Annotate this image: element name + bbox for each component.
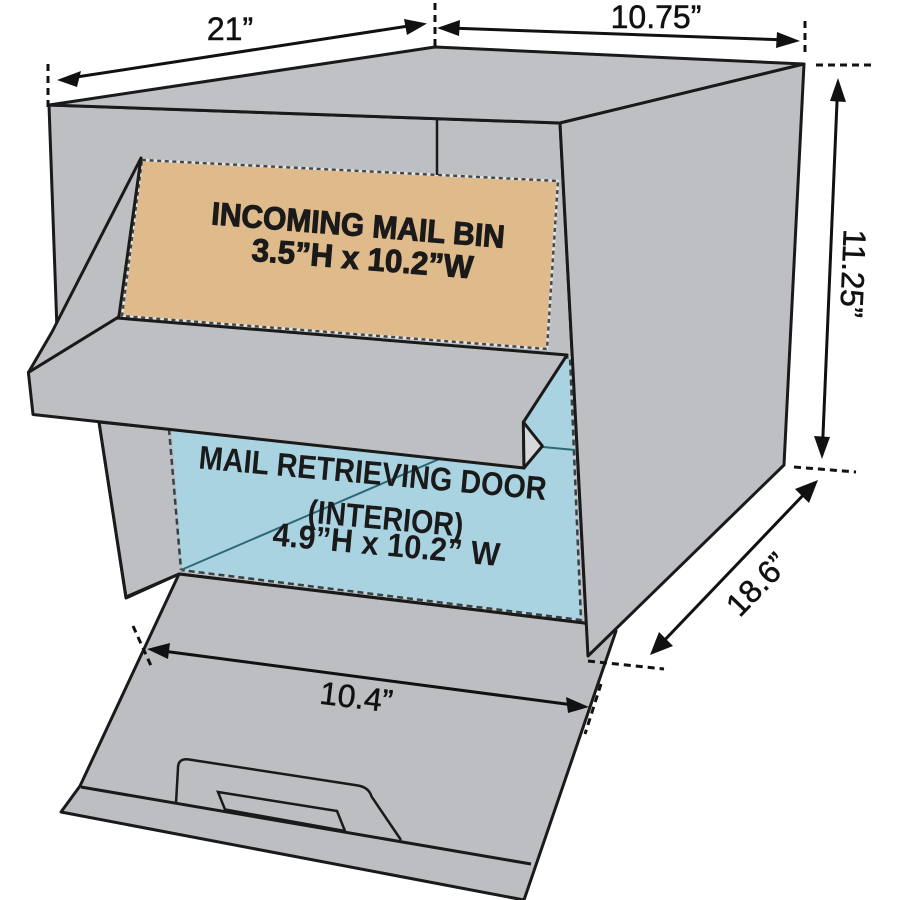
- svg-text:11.25”: 11.25”: [833, 229, 873, 319]
- svg-text:10.75”: 10.75”: [611, 0, 702, 35]
- svg-text:21”: 21”: [207, 11, 253, 47]
